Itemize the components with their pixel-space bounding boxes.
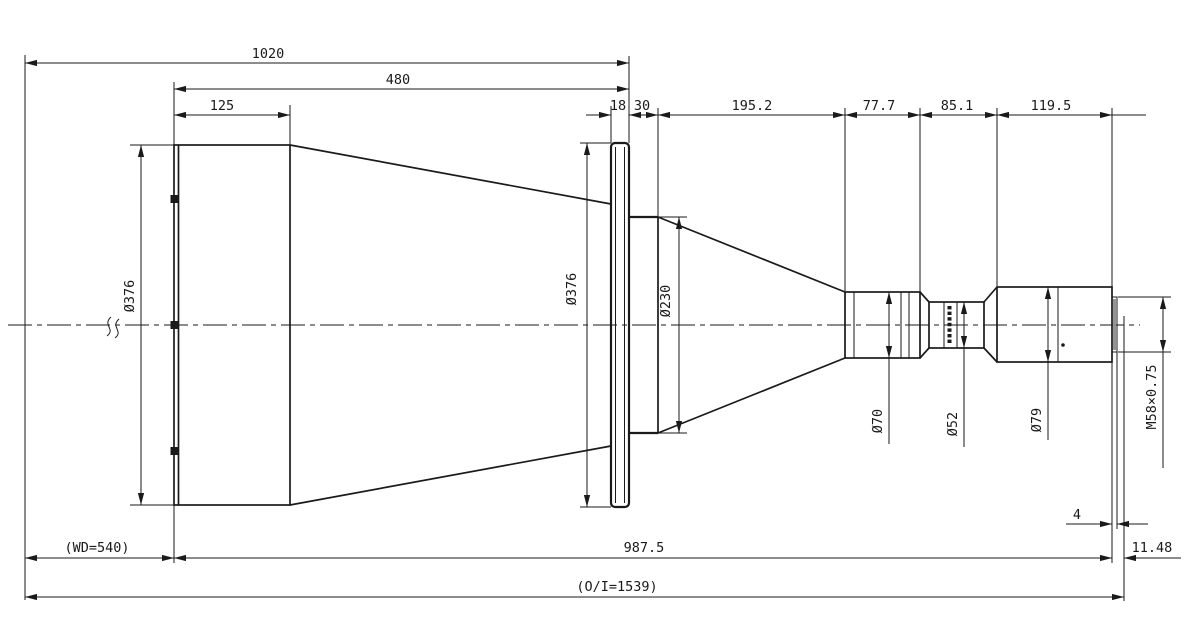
knurl-marks — [948, 306, 952, 343]
dim-section-79: 119.5 — [1031, 98, 1072, 114]
dia-barrel-79: Ø79 — [1029, 408, 1045, 432]
not-to-scale-break-symbol — [107, 317, 119, 338]
dim-hood-length: 480 — [386, 72, 410, 88]
front-face-mark — [171, 321, 179, 329]
barrel-dot — [1061, 343, 1065, 347]
front-face-mark — [171, 447, 179, 455]
dim-flange-thickness: 18 — [610, 98, 626, 114]
dim-rear-cone: 195.2 — [732, 98, 773, 114]
dim-rear-cell: 30 — [634, 98, 650, 114]
dim-working-distance: (WD=540) — [64, 540, 129, 556]
dim-body-length: 987.5 — [624, 540, 665, 556]
lens-dimension-drawing: 1020 480 125 18 30 195.2 77.7 85.1 119.5… — [0, 0, 1200, 620]
dim-section-70: 77.7 — [863, 98, 896, 114]
dim-thread-length: 4 — [1073, 507, 1081, 523]
dim-section-52: 85.1 — [941, 98, 974, 114]
dim-overall-front: 1020 — [252, 46, 285, 62]
thread-spec: M58×0.75 — [1144, 364, 1160, 429]
dia-flange: Ø376 — [564, 273, 580, 306]
dia-rear-cell: Ø230 — [658, 285, 674, 318]
extension-lines — [25, 55, 1171, 600]
front-face-mark — [171, 195, 179, 203]
dia-front: Ø376 — [122, 280, 138, 313]
drawing-canvas: 1020 480 125 18 30 195.2 77.7 85.1 119.5… — [0, 0, 1200, 620]
dia-barrel-52: Ø52 — [945, 412, 961, 436]
dim-object-image: (O/I=1539) — [576, 579, 657, 595]
dim-front-cell: 125 — [210, 98, 234, 114]
dia-barrel-70: Ø70 — [870, 409, 886, 433]
dim-flange-focal: 11.48 — [1132, 540, 1173, 556]
